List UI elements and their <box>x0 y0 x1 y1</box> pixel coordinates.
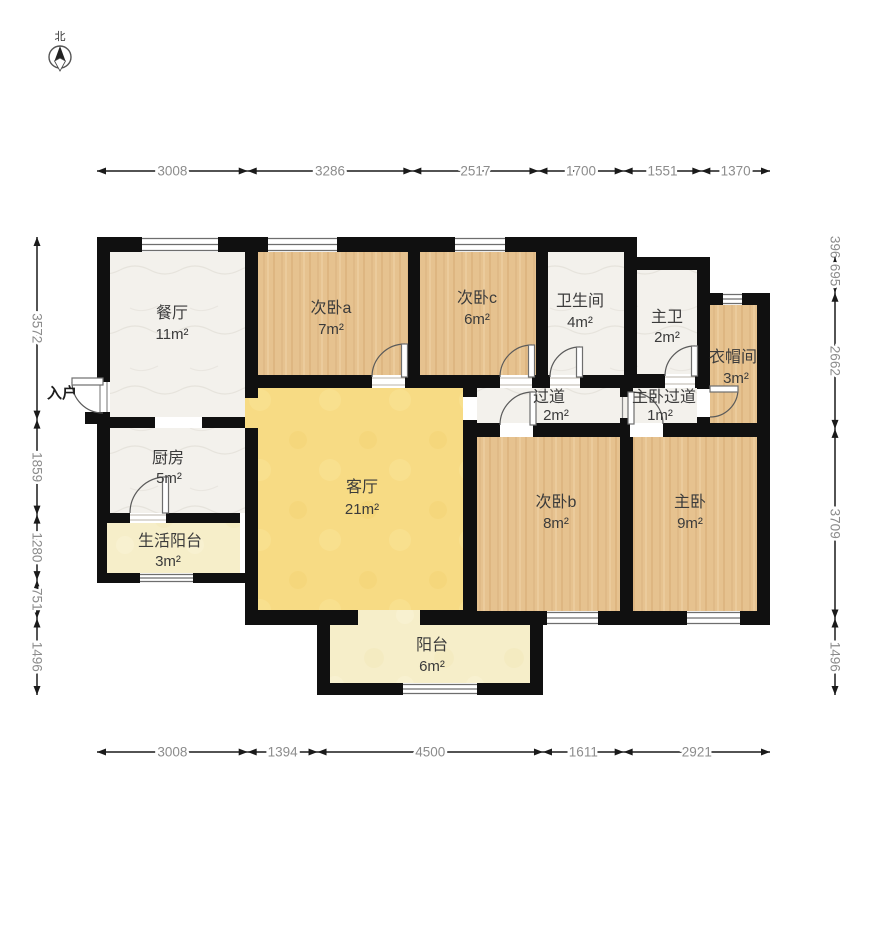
plan-shape <box>309 749 318 756</box>
compass-north-label: 北 <box>55 30 66 43</box>
dimension-line-top: 300832862517170015511370 <box>97 164 770 179</box>
wall-segment <box>663 423 770 437</box>
svg-text:2921: 2921 <box>682 745 712 760</box>
plan-shape <box>239 749 248 756</box>
svg-text:1496: 1496 <box>828 642 843 672</box>
room-label-balcony: 阳台 <box>416 636 448 654</box>
room-label-bedroom-a: 次卧a <box>311 299 352 317</box>
wall-segment <box>97 237 110 382</box>
plan-shape <box>534 749 543 756</box>
plan-shape <box>529 345 535 377</box>
room-area-closet: 3m² <box>723 370 749 387</box>
wall-segment <box>97 513 107 583</box>
svg-text:3286: 3286 <box>315 164 345 179</box>
floor-living-passage <box>245 398 258 428</box>
plan-shape <box>34 610 41 619</box>
plan-shape <box>529 168 538 175</box>
entrance-label: 入户 <box>47 384 77 402</box>
plan-shape <box>692 346 698 376</box>
window-glyph <box>140 573 193 583</box>
plan-shape <box>403 168 412 175</box>
dimension-line-bottom: 30081394450016112921 <box>97 745 770 760</box>
room-area-bedroom-b: 8m² <box>543 515 569 532</box>
room-label-bedroom-c: 次卧c <box>457 289 497 307</box>
room-area-bathroom: 4m² <box>567 314 593 331</box>
svg-text:1611: 1611 <box>569 745 598 760</box>
svg-text:1280: 1280 <box>30 532 45 562</box>
plan-shape <box>34 506 41 515</box>
plan-shape <box>832 293 839 302</box>
wall-segment <box>530 613 543 695</box>
room-area-living-room: 21m² <box>345 501 379 518</box>
plan-shape <box>412 168 421 175</box>
room-label-kitchen: 厨房 <box>152 449 184 467</box>
plan-shape <box>577 347 583 377</box>
wall-segment <box>536 237 548 375</box>
plan-shape <box>701 168 710 175</box>
room-area-balcony: 6m² <box>419 658 445 675</box>
room-area-bedroom-a: 7m² <box>318 321 344 338</box>
wall-segment <box>757 293 770 625</box>
plan-shape <box>543 749 552 756</box>
room-label-service-balcony: 生活阳台 <box>138 532 202 550</box>
svg-text:751: 751 <box>30 588 45 611</box>
room-label-living-room: 客厅 <box>346 478 378 496</box>
svg-text:4500: 4500 <box>415 745 445 760</box>
plan-shape <box>692 168 701 175</box>
wall-segment <box>110 417 155 428</box>
wall-segment <box>697 417 710 423</box>
window-glyph <box>723 293 742 305</box>
wall-segment <box>97 412 110 513</box>
floorplan-canvas: 餐厅 11m² 次卧a 7m² 次卧c 6m² 卫生间 4m² 主卫 2m² 衣… <box>0 0 871 937</box>
room-area-master-hallway: 1m² <box>647 407 673 424</box>
plan-shape <box>239 168 248 175</box>
room-area-master-bath: 2m² <box>654 329 680 346</box>
floorplan-page: 餐厅 11m² 次卧a 7m² 次卧c 6m² 卫生间 4m² 主卫 2m² 衣… <box>0 0 871 937</box>
plan-shape <box>34 571 41 580</box>
plan-shape <box>97 168 106 175</box>
plan-shape <box>615 749 624 756</box>
plan-shape <box>624 168 633 175</box>
room-label-master-bath: 主卫 <box>651 308 683 326</box>
wall-segment <box>337 237 455 252</box>
wall-segment <box>193 573 253 583</box>
wall-segment <box>697 257 710 389</box>
svg-text:1700: 1700 <box>566 164 596 179</box>
compass-icon: 北 <box>49 30 71 71</box>
plan-shape <box>248 168 257 175</box>
wall-segment <box>85 412 110 424</box>
svg-text:695: 695 <box>828 264 843 287</box>
svg-text:396: 396 <box>828 236 843 259</box>
wall-segment <box>408 237 420 375</box>
plan-shape <box>34 515 41 524</box>
wall-segment <box>218 237 268 252</box>
svg-text:1859: 1859 <box>30 452 45 482</box>
dimension-line-right: 396695266237091496 <box>828 236 843 695</box>
svg-text:3008: 3008 <box>157 745 187 760</box>
plan-shape <box>248 749 257 756</box>
plan-shape <box>34 619 41 628</box>
plan-shape <box>72 378 103 385</box>
plan-shape <box>97 749 106 756</box>
window-glyph <box>142 237 218 252</box>
svg-text:2662: 2662 <box>828 346 843 376</box>
window-glyph <box>268 237 337 252</box>
wall-segment <box>505 237 637 252</box>
floor-living-room <box>258 388 463 610</box>
plan-shape <box>34 237 41 246</box>
plan-shape <box>34 411 41 420</box>
room-area-service-balcony: 3m² <box>155 553 181 570</box>
wall-segment <box>598 611 687 625</box>
window-glyph <box>455 237 505 252</box>
wall-segment <box>245 237 258 398</box>
floor-balcony-passage <box>358 610 420 625</box>
wall-segment <box>317 613 330 695</box>
plan-shape <box>832 619 839 628</box>
plan-shape <box>34 420 41 429</box>
room-area-bedroom-c: 6m² <box>464 311 490 328</box>
svg-text:3572: 3572 <box>30 313 45 343</box>
room-area-dining: 11m² <box>155 326 188 343</box>
room-label-closet: 衣帽间 <box>709 348 757 366</box>
room-label-dining: 餐厅 <box>156 304 188 322</box>
dimension-line-left: 3572185912807511496 <box>30 237 45 695</box>
plan-shape <box>832 429 839 438</box>
wall-segment <box>166 513 240 523</box>
wall-segment <box>637 374 665 388</box>
wall-segment <box>405 375 500 388</box>
plan-shape <box>615 168 624 175</box>
svg-text:3709: 3709 <box>828 509 843 539</box>
svg-text:1394: 1394 <box>268 745 299 760</box>
plan-shape <box>318 749 327 756</box>
svg-text:1496: 1496 <box>30 642 45 672</box>
window-glyph <box>403 683 477 695</box>
room-label-hallway: 过道 <box>533 388 565 406</box>
wall-segment <box>580 375 624 388</box>
svg-text:1370: 1370 <box>721 164 751 179</box>
plan-shape <box>761 749 770 756</box>
svg-text:2517: 2517 <box>460 164 490 179</box>
wall-segment <box>245 610 358 625</box>
room-label-bathroom: 卫生间 <box>556 292 604 310</box>
wall-segment <box>245 375 372 388</box>
window-glyph <box>547 611 598 625</box>
wall-segment <box>245 428 258 610</box>
plan-shape <box>832 420 839 429</box>
plan-shape <box>624 749 633 756</box>
wall-segment <box>202 417 245 428</box>
svg-text:3008: 3008 <box>157 164 187 179</box>
window-glyph <box>687 611 740 625</box>
wall-segment <box>533 423 630 437</box>
plan-shape <box>832 686 839 695</box>
room-area-kitchen: 5m² <box>156 470 182 487</box>
plan-shape <box>538 168 547 175</box>
compass-needle-south <box>55 58 66 71</box>
plan-shape <box>761 168 770 175</box>
room-label-master-hallway: 主卧过道 <box>632 388 696 406</box>
room-area-master-bedroom: 9m² <box>677 515 703 532</box>
wall-segment <box>463 388 477 397</box>
room-label-master-bedroom: 主卧 <box>674 493 706 511</box>
plan-shape <box>402 344 408 377</box>
wall-segment <box>463 420 477 610</box>
svg-text:1551: 1551 <box>647 164 677 179</box>
plan-shape <box>97 382 110 412</box>
plan-shape <box>832 610 839 619</box>
room-area-hallway: 2m² <box>543 407 569 424</box>
plan-shape <box>34 686 41 695</box>
room-label-bedroom-b: 次卧b <box>536 493 577 511</box>
wall-segment <box>624 237 637 388</box>
wall-segment <box>620 437 633 611</box>
